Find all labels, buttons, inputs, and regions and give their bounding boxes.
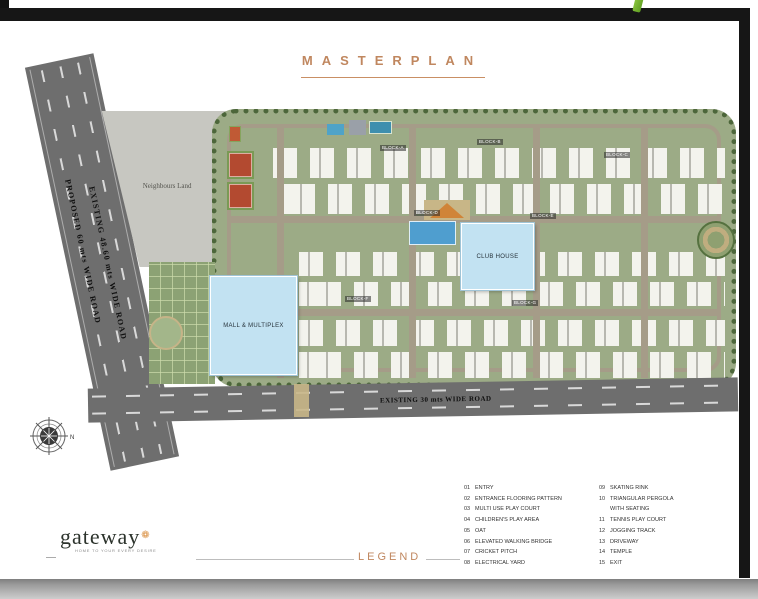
swimming-pool <box>409 221 456 245</box>
legend-item: 03MULTI USE PLAY COURT <box>464 504 562 515</box>
legend-item: 02ENTRANCE FLOORING PATTERN <box>464 494 562 505</box>
legend-item: 12JOGGING TRACK <box>599 526 674 537</box>
legend-item: 07CRICKET PITCH <box>464 547 562 558</box>
logo-tagline: HOME TO YOUR EVERY DESIRE <box>60 548 200 553</box>
block-label: BLOCK-E <box>530 213 556 219</box>
legend-item: 13DRIVEWAY <box>599 537 674 548</box>
internal-road <box>641 128 648 378</box>
amenity-building <box>349 120 366 135</box>
skating-rink <box>229 126 241 142</box>
legend-title: LEGEND <box>358 551 421 563</box>
tennis-play-court <box>369 121 392 134</box>
building-row-south <box>299 320 725 378</box>
divider-line <box>46 557 56 558</box>
logo-flower-icon: ❁ <box>141 530 149 541</box>
mall-multiplex-building: MALL & MULTIPLEX <box>210 276 297 375</box>
entrance-flooring-pattern <box>294 384 309 417</box>
divider-line <box>426 559 460 560</box>
legend-item: 14TEMPLE <box>599 547 674 558</box>
building-row-north <box>273 148 725 214</box>
block-label: BLOCK-G <box>512 300 538 306</box>
legend-column-2: 09SKATING RINK 10TRIANGULAR PERGOLA WITH… <box>599 483 674 569</box>
neighbours-land-label: Neighbours Land <box>143 182 192 190</box>
clubhouse-building: CLUB HOUSE <box>461 223 534 290</box>
multi-use-play-court <box>227 151 254 179</box>
internal-road <box>533 128 540 378</box>
multi-use-play-court <box>227 182 254 210</box>
legend-item: 15EXIT <box>599 558 674 569</box>
legend-item: 10TRIANGULAR PERGOLA <box>599 494 674 505</box>
circular-park <box>697 221 735 259</box>
legend-item: WITH SEATING <box>599 504 674 515</box>
legend-item: 01ENTRY <box>464 483 562 494</box>
mall-label: MALL & MULTIPLEX <box>223 323 283 329</box>
divider-line <box>196 559 354 560</box>
building-cluster <box>273 148 725 178</box>
legend-item: 05OAT <box>464 526 562 537</box>
legend-column-1: 01ENTRY 02ENTRANCE FLOORING PATTERN 03MU… <box>464 483 562 569</box>
road-label-existing-30: EXISTING 30 mts WIDE ROAD <box>380 395 492 405</box>
masterplan-page: MASTERPLAN PROPOSED 60 mts WIDE ROAD EXI… <box>0 0 758 599</box>
compass-north-label: N <box>70 435 74 441</box>
garden-circle <box>149 316 183 350</box>
frame-right-bar <box>739 8 750 578</box>
title-underline <box>301 77 485 78</box>
internal-road <box>409 128 416 378</box>
building-cluster <box>299 352 725 378</box>
building-cluster <box>273 184 725 214</box>
clubhouse-label: CLUB HOUSE <box>476 254 518 260</box>
block-label: BLOCK-B <box>477 139 503 145</box>
legend-item: 11TENNIS PLAY COURT <box>599 515 674 526</box>
block-label: BLOCK-D <box>414 210 440 216</box>
block-label: BLOCK-F <box>345 296 371 302</box>
road-south: EXISTING 30 mts WIDE ROAD <box>88 377 738 422</box>
pool <box>327 124 344 135</box>
legend-item: 06ELEVATED WALKING BRIDGE <box>464 537 562 548</box>
legend-item: 04CHILDREN'S PLAY AREA <box>464 515 562 526</box>
page-title: MASTERPLAN <box>0 53 750 68</box>
building-cluster <box>299 320 725 346</box>
block-label: BLOCK-C <box>604 152 630 158</box>
table-edge-shadow <box>0 579 758 599</box>
logo-wordmark: gateway <box>60 524 140 549</box>
gateway-logo: gateway❁ HOME TO YOUR EVERY DESIRE <box>60 524 200 553</box>
block-label: BLOCK-A <box>380 145 406 151</box>
legend-item: 08ELECTRICAL YARD <box>464 558 562 569</box>
legend-item: 09SKATING RINK <box>599 483 674 494</box>
compass-icon: N <box>28 413 74 459</box>
